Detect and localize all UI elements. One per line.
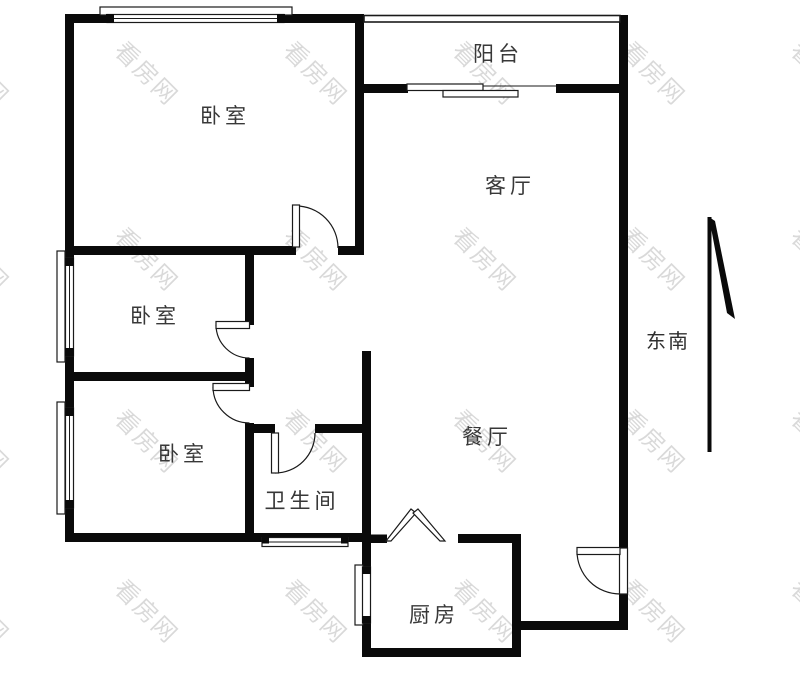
wall-right-lower	[619, 594, 628, 630]
floorplan-canvas: 看房网看房网看房网看房网看房网看房网看房网看房网看房网看房网看房网看房网看房网看…	[0, 0, 800, 686]
room-label-bedroom-bottom: 卧室	[158, 442, 208, 466]
wall-left-upper	[65, 14, 74, 258]
wall-kitchen-left-lower	[362, 623, 371, 657]
balcony-railing	[364, 16, 620, 23]
wall-bathroom-top-left	[254, 424, 275, 433]
wall-kitchen-left-upper	[362, 543, 371, 567]
door-bedroom1	[293, 205, 339, 248]
wall-dining-left	[362, 351, 371, 543]
compass-label: 东南	[646, 329, 690, 353]
sliding-door-balcony	[407, 84, 556, 97]
window-bedroom3-left	[57, 402, 74, 514]
wall-bedroom1-bottom-left	[65, 246, 296, 255]
wall-dining-bottom	[512, 621, 628, 630]
walls-layer	[65, 14, 628, 657]
window-bedroom2-left	[57, 251, 74, 362]
compass-southeast: 东南	[646, 217, 735, 452]
wall-inner-middle	[245, 358, 254, 387]
window-kitchen-left	[355, 565, 371, 625]
wall-kitchen-right	[512, 534, 521, 657]
door-bedroom3	[213, 384, 250, 424]
wall-kitchen-bottom	[362, 648, 521, 657]
compass-arrow-shaft	[708, 217, 712, 452]
room-label-bedroom-middle: 卧室	[130, 304, 180, 328]
room-label-bathroom: 卫生间	[265, 489, 340, 513]
wall-inner-upper	[245, 246, 254, 325]
wall-bathroom-left	[245, 423, 254, 542]
wall-bathroom-bottom-overwindow	[262, 533, 348, 538]
wall-kitchen-top-stub	[371, 535, 387, 544]
door-main-entrance	[577, 548, 628, 595]
room-label-kitchen: 厨房	[409, 603, 459, 627]
kitchen-doorway-symbol	[386, 509, 445, 541]
room-label-bedroom-top: 卧室	[200, 104, 250, 128]
wall-left-lower	[65, 508, 74, 542]
wall-kitchen-top	[458, 534, 521, 543]
wall-balcony-divider-right	[556, 84, 628, 93]
floorplan-svg: 东南 卧室 阳台 客厅 卧室 卧室 卫生间 餐厅 厨房	[0, 0, 800, 686]
wall-bathroom-bottom-left	[65, 533, 262, 542]
wall-top-right	[283, 14, 364, 23]
compass-arrow-barb	[709, 217, 735, 319]
room-label-dining: 餐厅	[462, 425, 512, 449]
wall-right-upper	[619, 15, 628, 548]
door-bedroom2	[216, 322, 250, 359]
wall-left-middle	[65, 356, 74, 408]
room-label-living: 客厅	[485, 174, 535, 198]
wall-bedroom1-right	[355, 14, 364, 255]
wall-bedroom2-bottom	[65, 372, 254, 381]
door-bathroom	[272, 433, 316, 473]
room-label-balcony: 阳台	[473, 42, 523, 66]
window-bedroom1-top	[100, 7, 292, 23]
